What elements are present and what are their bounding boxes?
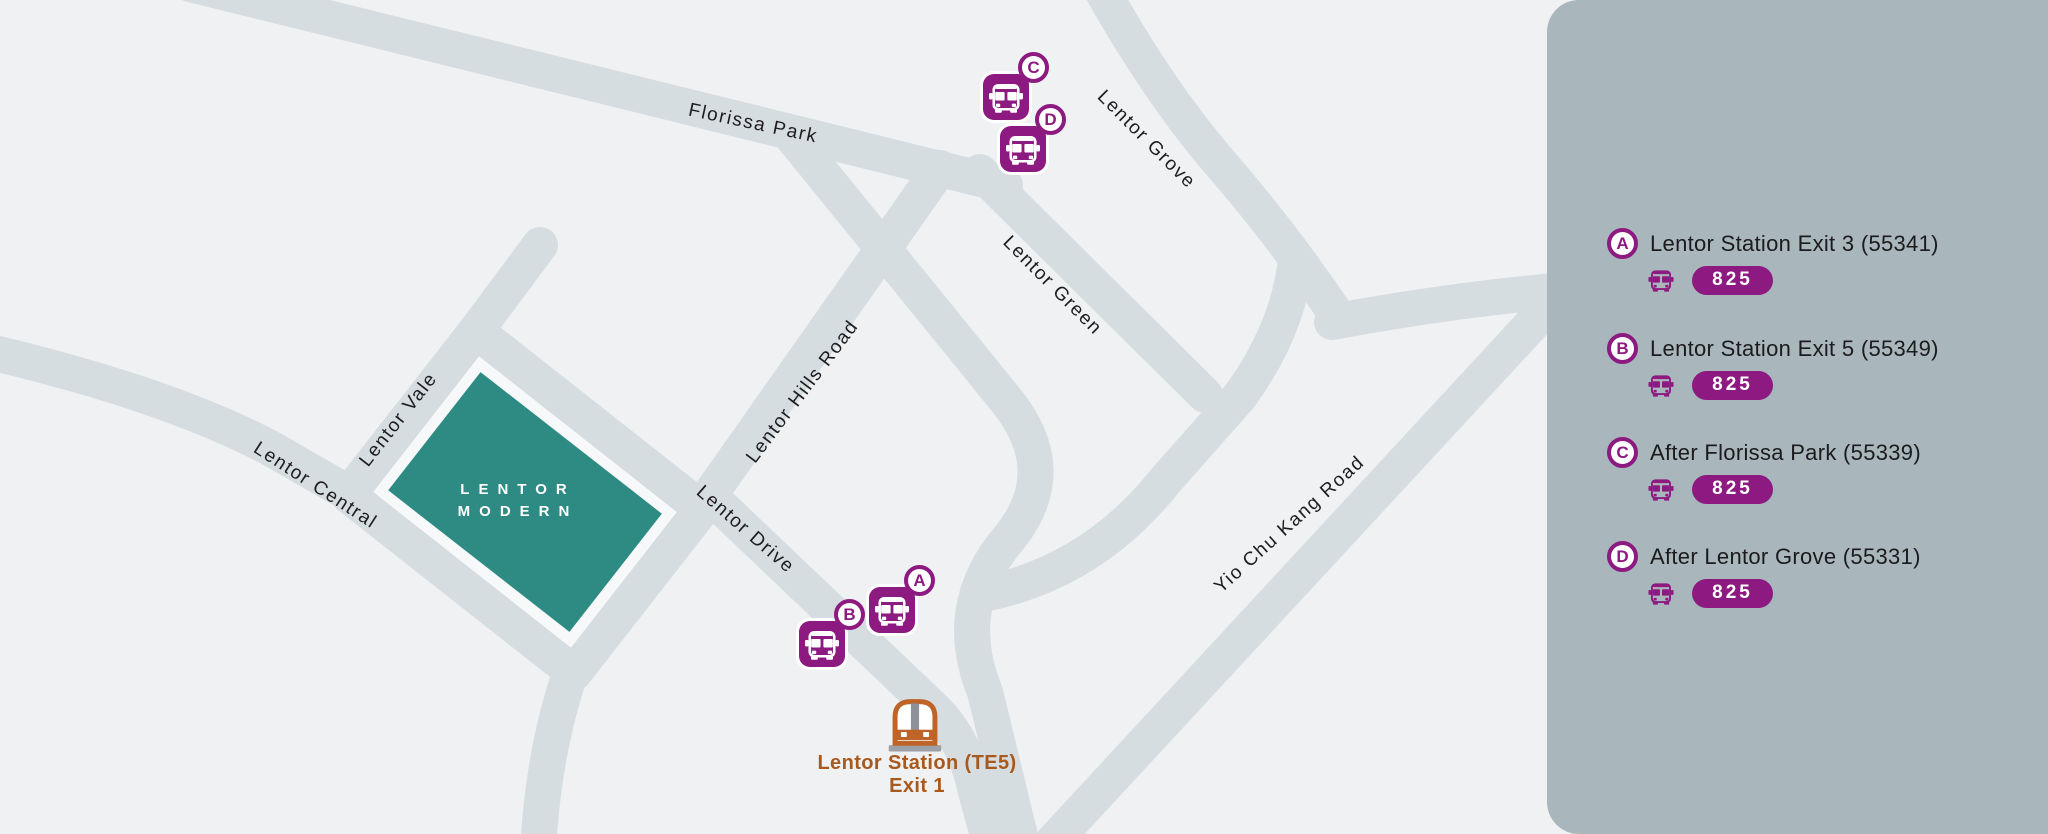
stop-letter-badge: B bbox=[834, 599, 865, 630]
bus-route-number: 825 bbox=[1712, 478, 1753, 500]
road-florissa-park bbox=[190, 0, 1005, 185]
legend-stop-name: After Florissa Park (55339) bbox=[1650, 440, 1921, 466]
bus-icon bbox=[983, 74, 1029, 120]
site-label-line2: MODERN bbox=[418, 501, 618, 523]
bus-route-number: 825 bbox=[1712, 269, 1753, 291]
stop-letter: D bbox=[1044, 110, 1056, 130]
stop-letter: A bbox=[913, 571, 925, 591]
stop-letter: C bbox=[1027, 58, 1039, 78]
bus-icon bbox=[1644, 576, 1678, 610]
road-yio-chu-kang bbox=[1050, 296, 1558, 834]
lentor-modern-bus-map: Florissa Park Lentor Grove Lentor Green … bbox=[0, 0, 2048, 834]
bus-route-pill: 825 bbox=[1692, 579, 1773, 608]
legend-letter-badge: B bbox=[1607, 333, 1638, 364]
bus-stop-marker-c[interactable]: C bbox=[983, 74, 1029, 120]
bus-icon bbox=[1644, 368, 1678, 402]
bus-stop-marker-d[interactable]: D bbox=[1000, 126, 1046, 172]
legend-item-c: C After Florissa Park (55339) 825 bbox=[1607, 437, 2027, 506]
stop-letter-badge: A bbox=[904, 565, 935, 596]
bus-icon bbox=[1644, 472, 1678, 506]
site-label-line1: LENTOR bbox=[418, 479, 618, 501]
bus-icon bbox=[1000, 126, 1046, 172]
legend-panel: A Lentor Station Exit 3 (55341) 825 bbox=[1547, 0, 2048, 834]
bus-route-pill: 825 bbox=[1692, 266, 1773, 295]
bus-icon bbox=[799, 621, 845, 667]
legend-letter: A bbox=[1616, 234, 1628, 254]
legend-letter: D bbox=[1616, 547, 1628, 567]
bus-stop-marker-a[interactable]: A bbox=[869, 587, 915, 633]
legend-item-b: B Lentor Station Exit 5 (55349) 825 bbox=[1607, 333, 2027, 402]
road-lentor-green bbox=[980, 172, 1205, 395]
legend-letter-badge: C bbox=[1607, 437, 1638, 468]
lentor-modern-site-label: LENTOR MODERN bbox=[418, 479, 618, 523]
bus-route-pill: 825 bbox=[1692, 475, 1773, 504]
legend-letter-badge: A bbox=[1607, 228, 1638, 259]
stop-letter-badge: D bbox=[1035, 104, 1066, 135]
legend-stop-name: Lentor Station Exit 5 (55349) bbox=[1650, 336, 1939, 362]
mrt-station-label: Lentor Station (TE5) Exit 1 bbox=[777, 752, 1057, 798]
legend-stop-name: After Lentor Grove (55331) bbox=[1650, 544, 1921, 570]
bus-route-number: 825 bbox=[1712, 582, 1753, 604]
stop-letter-badge: C bbox=[1018, 52, 1049, 83]
legend-item-d: D After Lentor Grove (55331) 825 bbox=[1607, 541, 2027, 610]
legend-letter-badge: D bbox=[1607, 541, 1638, 572]
stop-letter: B bbox=[843, 605, 855, 625]
legend-stop-name: Lentor Station Exit 3 (55341) bbox=[1650, 231, 1939, 257]
bus-stop-marker-b[interactable]: B bbox=[799, 621, 845, 667]
legend-item-a: A Lentor Station Exit 3 (55341) 825 bbox=[1607, 228, 2027, 297]
station-label-line2: Exit 1 bbox=[777, 775, 1057, 798]
road-lentor-hills bbox=[700, 168, 940, 509]
bus-route-pill: 825 bbox=[1692, 371, 1773, 400]
station-label-line1: Lentor Station (TE5) bbox=[777, 752, 1057, 775]
legend-letter: C bbox=[1616, 443, 1628, 463]
bus-icon bbox=[869, 587, 915, 633]
bus-route-number: 825 bbox=[1712, 374, 1753, 396]
legend-letter: B bbox=[1616, 339, 1628, 359]
road-ring-exit-south bbox=[539, 668, 572, 834]
bus-icon bbox=[1644, 263, 1678, 297]
